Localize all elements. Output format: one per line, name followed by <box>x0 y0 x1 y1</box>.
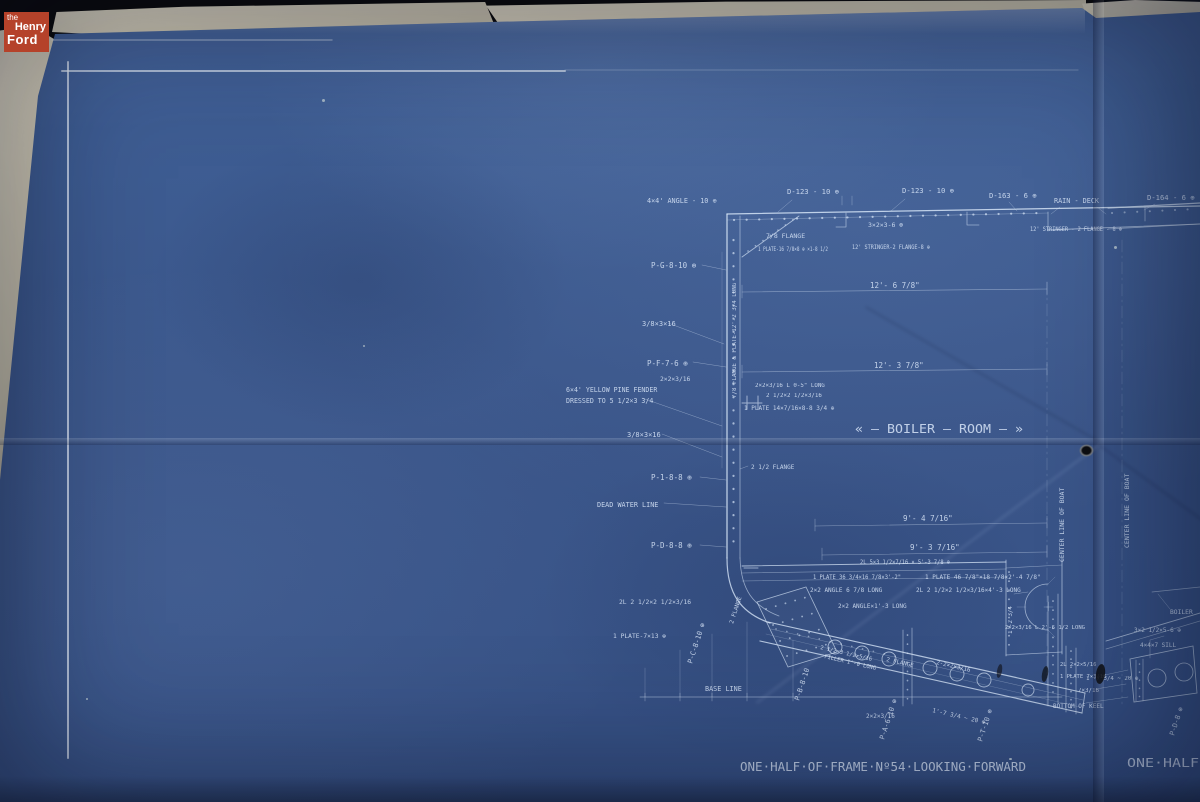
blueprint-annotation: P-D-8-8 ⊕ <box>651 541 692 550</box>
lightening-hole <box>923 661 937 675</box>
blueprint-annotation: 2×2×3/16 L 2'-6 1/2 LONG <box>1005 625 1085 631</box>
blueprint-drawing: 4×4' ANGLE - 10 ⊕D-123 - 10 ⊕D-123 - 10 … <box>0 0 1200 802</box>
sheet-margin-border <box>52 40 1078 758</box>
blueprint-annotation: 1 PLATE-16 7/8×8 ⊕ ×1-8 1/2 <box>758 246 828 253</box>
blueprint-annotation: 12' STRINGER-2 FLANGE-8 ⊕ <box>852 244 930 251</box>
blueprint-annotation: 2×2×3/16 <box>660 376 691 383</box>
blueprint-annotation: 12'- 3 7/8" <box>874 361 924 370</box>
blueprint-annotation: 2×2×3/16 L 0-5" LONG <box>755 383 825 389</box>
blueprint-annotation: CENTER LINE OF BOAT <box>1058 488 1066 562</box>
blueprint-annotation: 2L 2 1/2×2 1/2×3/16 <box>619 599 691 606</box>
blueprint-annotation: 1 PLATE 14×7/16×8-8 3/4 ⊕ <box>744 405 835 412</box>
blueprint-annotation: D-123 - 10 ⊕ <box>902 186 954 195</box>
dust-speck <box>363 345 365 347</box>
blueprint-annotation: 2L 2 1/2×2 1/2×3/16×4'-3 LONG <box>916 587 1021 594</box>
blueprint-annotation: D-163 - 6 ⊕ <box>989 191 1037 200</box>
blueprint-annotation: 9'- 3 7/16" <box>910 543 960 552</box>
blueprint-annotation: 2 FLANGE <box>886 657 915 669</box>
blueprint-annotation: 12'- 6 7/8" <box>870 281 920 290</box>
blueprint-annotation: D-123 - 10 ⊕ <box>787 187 839 196</box>
henry-ford-logo: the Henry Ford <box>4 12 49 52</box>
blueprint-photo: 4×4' ANGLE - 10 ⊕D-123 - 10 ⊕D-123 - 10 … <box>0 0 1200 802</box>
blueprint-annotation: 1'-2 3/4 <box>1008 606 1014 634</box>
blueprint-annotation: 2 FLANGE <box>729 596 743 625</box>
fold-panel-tone <box>1104 0 1200 802</box>
blueprint-annotation: 2-2×2×3/16 <box>936 660 972 674</box>
blueprint-annotation: 2×2 ANGLE×1'-3 LONG <box>838 603 907 610</box>
blueprint-annotation: 1 PLATE 36 3/4×16 7/8×3'-2" <box>813 574 901 581</box>
lightening-hole <box>1022 684 1034 696</box>
logo-text-ford: Ford <box>7 33 46 46</box>
blueprint-annotation: P-C-8-10 ⊕ <box>686 621 707 664</box>
blueprint-annotation: 7/8 FLANGE <box>766 232 805 240</box>
blueprint-annotation: 9'- 4 7/16" <box>903 514 953 523</box>
blueprint-annotation: 4×4' ANGLE - 10 ⊕ <box>647 197 717 205</box>
dust-speck <box>1114 246 1117 249</box>
blueprint-annotation: 6×4' YELLOW PINE FENDER <box>566 386 657 394</box>
blueprint-annotation: P-1-8-8 ⊕ <box>651 473 692 482</box>
blueprint-annotation: 2×2 ANGLE 6 7/8 LONG <box>810 587 883 594</box>
boiler-room-label: « – BOILER – ROOM – » <box>855 422 1023 436</box>
blueprint-annotation: 2 1/2×2 1/2×3/16 <box>766 393 822 399</box>
blueprint-annotation: 1'-7 3/4 ~ 20 ⊕ <box>932 707 987 726</box>
blueprint-annotation: 2L 2×2×5/16 <box>1060 662 1096 668</box>
blueprint-annotation: P-T-10 ⊕ <box>976 707 994 742</box>
blueprint-annotation: 7/8 FLANGE & PLATE-12'-2 3/4 LONG <box>732 282 738 398</box>
blueprint-annotation: 3×2×3-6 ⊕ <box>868 221 903 229</box>
fold-crease-horizontal <box>0 438 1200 445</box>
bottom-shadow <box>0 776 1200 802</box>
blueprint-annotation: 1 PLATE 46 7/8"×18 7/8×2'-4 7/8" <box>925 574 1041 581</box>
tear-hole <box>1079 444 1094 457</box>
base-line-label: BASE LINE <box>705 685 742 693</box>
blueprint-annotation: P-G-8-10 ⊕ <box>651 261 696 270</box>
blueprint-annotation: 2 1/2 FLANGE <box>751 464 795 471</box>
blueprint-annotation: DRESSED TO 5 1/2×3 3/4 <box>566 397 653 405</box>
title-frame-54: ONE·HALF·OF·FRAME·Nº54·LOOKING·FORWARD <box>740 760 1026 774</box>
dust-speck <box>1009 758 1012 760</box>
dead-water-line-label: DEAD WATER LINE <box>597 501 658 509</box>
blueprint-annotation: 3/8×3×16 <box>642 320 676 328</box>
dust-speck <box>86 698 88 700</box>
deck-clip <box>836 213 846 227</box>
dust-speck <box>322 99 325 102</box>
blueprint-annotation: P-F-7-6 ⊕ <box>647 359 688 368</box>
blueprint-annotation: 1 PLATE-7×13 ⊕ <box>613 633 666 640</box>
